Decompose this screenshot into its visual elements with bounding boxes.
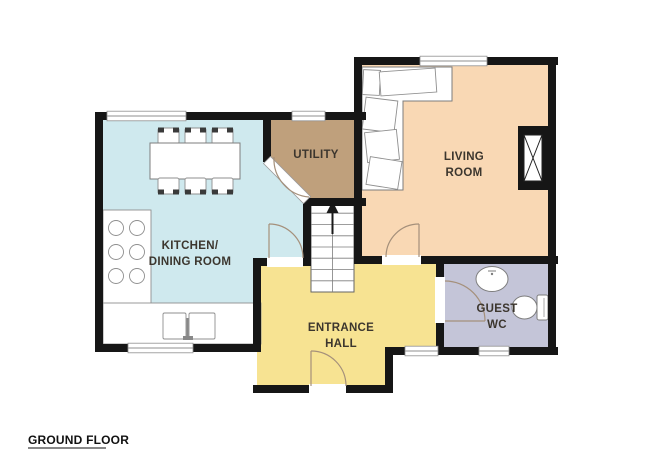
wc-label-line1: GUEST [476, 303, 517, 315]
floorplan-svg: KITCHEN/ DINING ROOM UTILITY LIVING ROOM… [0, 0, 668, 472]
window-icon [405, 346, 438, 356]
floor-caption: GROUND FLOOR [28, 433, 129, 448]
basin-icon [476, 267, 508, 292]
floorplan-page: KITCHEN/ DINING ROOM UTILITY LIVING ROOM… [0, 0, 668, 472]
dining-chair [158, 128, 179, 145]
dining-set [150, 128, 240, 195]
window-icon [107, 111, 186, 121]
wc-label-line2: WC [487, 319, 507, 331]
sink-icon [163, 313, 215, 340]
fireplace-icon [518, 126, 548, 190]
hall-label-line1: ENTRANCE [308, 322, 374, 334]
dining-table [150, 143, 240, 179]
kitchen-label-line2: DINING ROOM [149, 256, 232, 268]
dining-chair [212, 128, 233, 145]
kitchen-label-line1: KITCHEN/ [162, 240, 219, 252]
utility-label: UTILITY [293, 149, 339, 161]
window-icon [479, 346, 509, 356]
dining-chair [158, 178, 179, 195]
dining-chair [212, 178, 233, 195]
hall-label-line2: HALL [325, 338, 357, 350]
dining-chair [185, 178, 206, 195]
floor-label: GROUND FLOOR [28, 433, 129, 447]
window-icon [292, 111, 325, 121]
window-icon [128, 343, 193, 353]
staircase [311, 201, 354, 292]
living-label-line2: ROOM [446, 167, 483, 179]
dining-chair [185, 128, 206, 145]
window-icon [420, 56, 487, 66]
living-label-line1: LIVING [444, 151, 484, 163]
